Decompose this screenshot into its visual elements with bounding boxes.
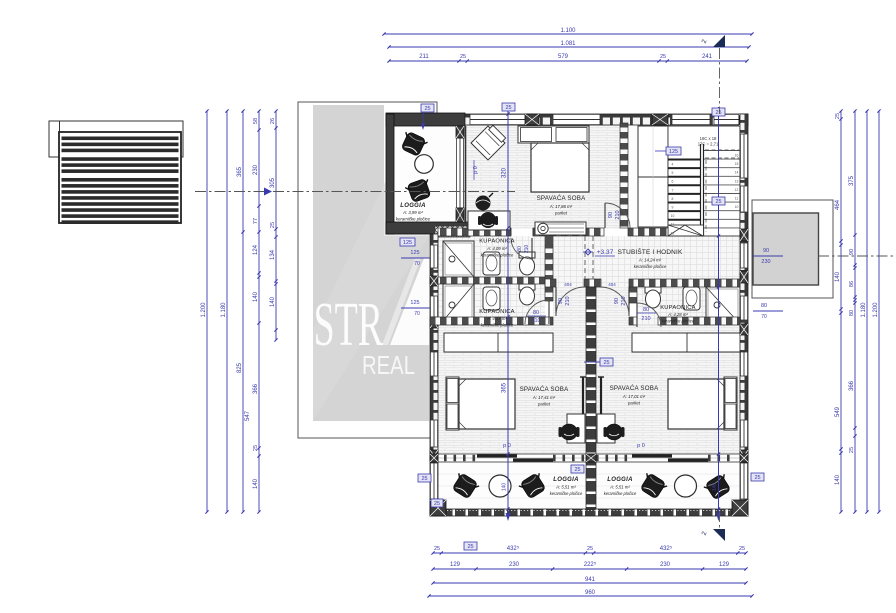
- svg-text:LOGGIA: LOGGIA: [607, 477, 632, 483]
- svg-text:25: 25: [253, 445, 259, 451]
- svg-text:70: 70: [414, 261, 420, 267]
- svg-text:keramičke pločice: keramičke pločice: [634, 264, 667, 269]
- svg-text:404: 404: [564, 282, 572, 287]
- svg-text:375: 375: [849, 175, 855, 186]
- svg-text:432⁵: 432⁵: [507, 545, 520, 552]
- svg-text:16C x 18: 16C x 18: [700, 136, 717, 141]
- svg-text:12: 12: [735, 188, 739, 192]
- svg-text:25: 25: [467, 544, 473, 550]
- svg-text:A: 17,01 m²: A: 17,01 m²: [622, 394, 646, 399]
- svg-text:140: 140: [835, 474, 841, 485]
- svg-text:REAL: REAL: [362, 350, 415, 380]
- svg-text:210: 210: [531, 318, 540, 324]
- svg-text:305: 305: [270, 177, 276, 188]
- svg-text:125: 125: [410, 250, 419, 256]
- svg-text:SPAVAĆA SOBA: SPAVAĆA SOBA: [520, 386, 569, 393]
- svg-text:90: 90: [763, 248, 769, 254]
- svg-text:80: 80: [849, 310, 855, 316]
- svg-text:210: 210: [565, 296, 571, 305]
- svg-text:80: 80: [761, 303, 767, 309]
- svg-text:A: 3,99 m²: A: 3,99 m²: [402, 210, 423, 215]
- svg-text:6: 6: [672, 180, 674, 184]
- svg-text:25: 25: [434, 546, 440, 552]
- svg-text:25: 25: [835, 113, 841, 119]
- svg-text:365: 365: [237, 166, 243, 177]
- svg-text:25: 25: [574, 467, 580, 473]
- svg-text:13: 13: [735, 179, 739, 183]
- svg-text:124: 124: [253, 244, 259, 255]
- svg-text:230: 230: [509, 562, 520, 568]
- svg-text:25: 25: [424, 106, 430, 112]
- svg-text:230: 230: [761, 259, 770, 265]
- svg-text:15: 15: [735, 162, 739, 166]
- svg-text:320: 320: [502, 167, 508, 178]
- svg-text:KUPAONICA: KUPAONICA: [660, 305, 696, 311]
- svg-text:10: 10: [671, 214, 675, 218]
- svg-text:5: 5: [672, 171, 674, 175]
- svg-text:404: 404: [608, 282, 616, 287]
- svg-text:A: 5,51 m²: A: 5,51 m²: [609, 485, 630, 490]
- svg-text:A: 14,24 m²: A: 14,24 m²: [638, 258, 662, 263]
- svg-text:25: 25: [715, 110, 721, 116]
- svg-text:keramičke pločice: keramičke pločice: [550, 491, 583, 496]
- svg-text:A: 4,28 m²: A: 4,28 m²: [667, 312, 688, 317]
- svg-text:+3.37: +3.37: [597, 249, 614, 256]
- svg-text:464: 464: [835, 199, 841, 210]
- svg-text:241: 241: [702, 54, 713, 60]
- svg-text:366: 366: [849, 380, 855, 391]
- svg-text:parket: parket: [627, 401, 641, 406]
- svg-text:125: 125: [410, 300, 419, 306]
- svg-text:77: 77: [253, 218, 259, 224]
- svg-text:140: 140: [502, 483, 508, 492]
- svg-text:80: 80: [517, 246, 523, 252]
- svg-text:211: 211: [419, 54, 429, 60]
- svg-text:140: 140: [253, 291, 259, 302]
- svg-text:210: 210: [524, 245, 530, 254]
- svg-text:825: 825: [237, 362, 243, 373]
- svg-text:210: 210: [621, 296, 627, 305]
- svg-text:A: 17,86 m²: A: 17,86 m²: [549, 204, 573, 209]
- svg-text:KUPAONICA: KUPAONICA: [479, 239, 515, 245]
- svg-text:25: 25: [715, 199, 721, 205]
- svg-text:keramičke pločice: keramičke pločice: [604, 491, 637, 496]
- svg-text:25: 25: [434, 501, 440, 507]
- svg-text:parket: parket: [537, 402, 551, 407]
- svg-text:579: 579: [558, 54, 569, 60]
- svg-text:25: 25: [739, 546, 745, 552]
- svg-text:140: 140: [253, 478, 259, 489]
- svg-text:140: 140: [712, 483, 718, 492]
- svg-text:1.081: 1.081: [560, 41, 576, 47]
- svg-text:parket: parket: [554, 211, 568, 216]
- svg-text:547: 547: [245, 410, 251, 421]
- svg-text:1.180: 1.180: [221, 302, 227, 318]
- svg-text:STUBIŠTE I HODNIK: STUBIŠTE I HODNIK: [618, 247, 683, 256]
- svg-text:90: 90: [614, 298, 620, 304]
- svg-text:210: 210: [641, 316, 650, 322]
- svg-text:25: 25: [587, 546, 593, 552]
- svg-text:90: 90: [558, 298, 564, 304]
- svg-text:58: 58: [253, 118, 259, 124]
- svg-text:A: 4,17 m²: A: 4,17 m²: [486, 316, 507, 321]
- svg-text:7: 7: [672, 188, 674, 192]
- svg-text:941: 941: [585, 577, 596, 583]
- svg-text:keramičke pločice: keramičke pločice: [396, 217, 431, 222]
- svg-text:LOGGIA: LOGGIA: [400, 203, 425, 209]
- svg-text:25: 25: [849, 447, 855, 453]
- svg-text:25: 25: [460, 54, 466, 60]
- svg-text:A: 4,09 m²: A: 4,09 m²: [486, 246, 507, 251]
- svg-text:549: 549: [835, 406, 841, 417]
- svg-text:365: 365: [502, 382, 508, 393]
- svg-text:8: 8: [672, 197, 674, 201]
- svg-text:A: 5,51 m²: A: 5,51 m²: [555, 485, 576, 490]
- svg-text:16: 16: [735, 154, 739, 158]
- svg-text:134: 134: [270, 249, 276, 260]
- svg-text:LOGGIA: LOGGIA: [553, 477, 578, 483]
- svg-text:25: 25: [754, 475, 760, 481]
- svg-text:70: 70: [414, 311, 420, 317]
- svg-text:129: 129: [719, 562, 730, 568]
- svg-text:p 0: p 0: [637, 443, 645, 449]
- svg-text:80: 80: [643, 307, 649, 313]
- svg-text:SPAVAĆA SOBA: SPAVAĆA SOBA: [610, 385, 659, 392]
- svg-text:210: 210: [615, 210, 621, 219]
- svg-text:86: 86: [849, 281, 855, 287]
- svg-text:25: 25: [421, 476, 427, 482]
- svg-text:1.200: 1.200: [873, 302, 879, 318]
- svg-text:A: 17,41 m²: A: 17,41 m²: [532, 395, 556, 400]
- svg-text:432⁵: 432⁵: [660, 545, 673, 552]
- svg-text:25: 25: [270, 222, 276, 228]
- svg-text:222⁵: 222⁵: [584, 561, 597, 568]
- svg-text:11: 11: [671, 223, 675, 227]
- svg-text:11: 11: [735, 197, 739, 201]
- svg-text:70: 70: [761, 314, 767, 320]
- svg-text:80: 80: [533, 310, 539, 316]
- svg-text:960: 960: [585, 590, 596, 596]
- svg-text:SPAVAĆA SOBA: SPAVAĆA SOBA: [537, 195, 586, 202]
- svg-text:10: 10: [735, 205, 739, 209]
- svg-text:keramičke pločice: keramičke pločice: [481, 253, 514, 258]
- svg-text:90: 90: [849, 249, 855, 255]
- svg-text:4: 4: [672, 163, 674, 167]
- svg-text:125: 125: [669, 149, 678, 155]
- svg-text:17C = 2,71: 17C = 2,71: [698, 142, 719, 147]
- svg-text:366: 366: [253, 383, 259, 394]
- svg-text:26: 26: [270, 118, 276, 124]
- svg-text:ISTR: ISTR: [301, 291, 383, 359]
- svg-text:230: 230: [253, 164, 259, 175]
- svg-text:25: 25: [660, 54, 666, 60]
- svg-text:keramičke pločice: keramičke pločice: [662, 319, 695, 324]
- svg-text:9: 9: [672, 206, 674, 210]
- svg-text:129: 129: [450, 562, 461, 568]
- svg-text:1.200: 1.200: [201, 302, 207, 318]
- svg-text:1.100: 1.100: [560, 28, 576, 34]
- svg-text:12: 12: [671, 231, 675, 235]
- svg-text:25: 25: [603, 360, 609, 366]
- svg-text:140: 140: [835, 271, 841, 282]
- svg-text:140: 140: [270, 296, 276, 307]
- svg-text:230: 230: [660, 562, 671, 568]
- svg-text:1.180: 1.180: [861, 302, 867, 318]
- svg-text:25: 25: [505, 105, 511, 111]
- svg-text:p 0: p 0: [503, 443, 511, 449]
- svg-text:125: 125: [403, 240, 412, 246]
- svg-text:KUPAONICA: KUPAONICA: [479, 309, 515, 315]
- svg-text:14: 14: [735, 171, 739, 175]
- svg-text:90: 90: [608, 212, 614, 218]
- svg-text:keramičke pločice: keramičke pločice: [481, 323, 514, 328]
